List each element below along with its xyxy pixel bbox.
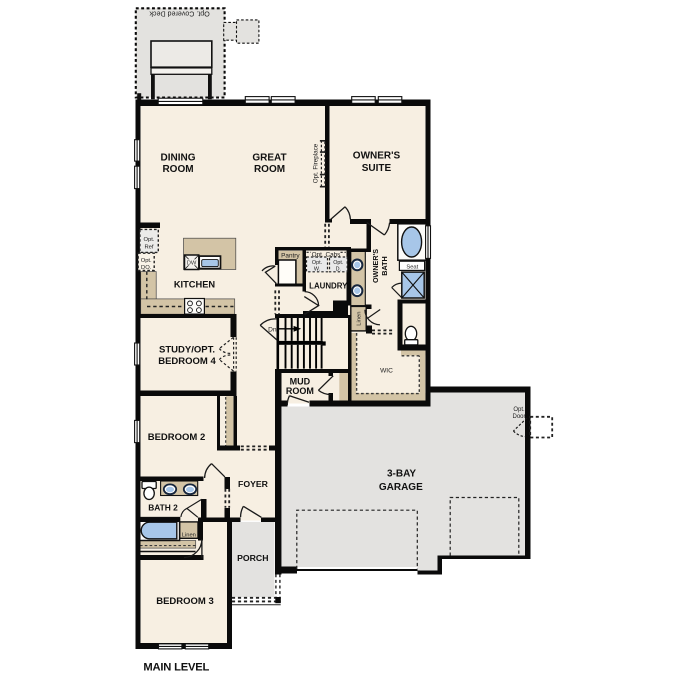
svg-text:FOYER: FOYER — [238, 479, 269, 489]
svg-text:BEDROOM 4: BEDROOM 4 — [158, 356, 216, 367]
svg-text:WIC: WIC — [380, 368, 393, 375]
svg-text:Linen: Linen — [356, 312, 362, 326]
svg-text:LAUNDRY: LAUNDRY — [309, 282, 348, 291]
svg-text:Opt.: Opt. — [144, 237, 155, 243]
svg-text:Opt.: Opt. — [141, 258, 152, 264]
svg-text:Door: Door — [512, 414, 525, 420]
svg-text:Opt. Fireplace: Opt. Fireplace — [313, 143, 320, 183]
svg-text:BATH 2: BATH 2 — [148, 502, 178, 512]
svg-text:MAIN LEVEL: MAIN LEVEL — [143, 662, 209, 674]
svg-text:Dn: Dn — [268, 327, 277, 334]
svg-text:Seat: Seat — [406, 264, 418, 270]
svg-text:D.: D. — [336, 266, 341, 272]
svg-text:W.: W. — [314, 266, 320, 272]
svg-text:Linen: Linen — [182, 532, 196, 538]
svg-text:Opt.: Opt. — [333, 260, 343, 266]
svg-text:DW: DW — [187, 261, 197, 267]
svg-text:GREAT: GREAT — [252, 152, 286, 163]
svg-text:BEDROOM 2: BEDROOM 2 — [148, 432, 206, 443]
svg-text:DO.: DO. — [141, 265, 152, 271]
svg-text:Ref: Ref — [144, 244, 153, 250]
svg-text:KITCHEN: KITCHEN — [174, 279, 216, 289]
svg-text:Opt. Covered Deck: Opt. Covered Deck — [149, 9, 210, 17]
svg-text:OWNER'S: OWNER'S — [371, 249, 380, 283]
svg-text:Opt.: Opt. — [312, 260, 322, 266]
svg-text:Opt.: Opt. — [513, 407, 525, 413]
svg-text:BEDROOM 3: BEDROOM 3 — [156, 596, 214, 607]
svg-text:BATH: BATH — [380, 256, 389, 275]
svg-text:OWNER'S: OWNER'S — [353, 151, 401, 162]
svg-text:PORCH: PORCH — [237, 553, 268, 563]
svg-text:ROOM: ROOM — [162, 164, 193, 175]
svg-text:GARAGE: GARAGE — [379, 482, 423, 493]
svg-text:SUITE: SUITE — [362, 163, 392, 174]
svg-text:ROOM: ROOM — [286, 386, 314, 396]
svg-text:3-BAY: 3-BAY — [387, 469, 416, 480]
svg-text:DINING: DINING — [161, 152, 196, 163]
svg-text:ROOM: ROOM — [254, 164, 285, 175]
svg-text:STUDY/OPT.: STUDY/OPT. — [159, 345, 215, 356]
svg-text:Opt. Cabs: Opt. Cabs — [312, 252, 341, 259]
svg-text:Pantry: Pantry — [281, 253, 300, 260]
